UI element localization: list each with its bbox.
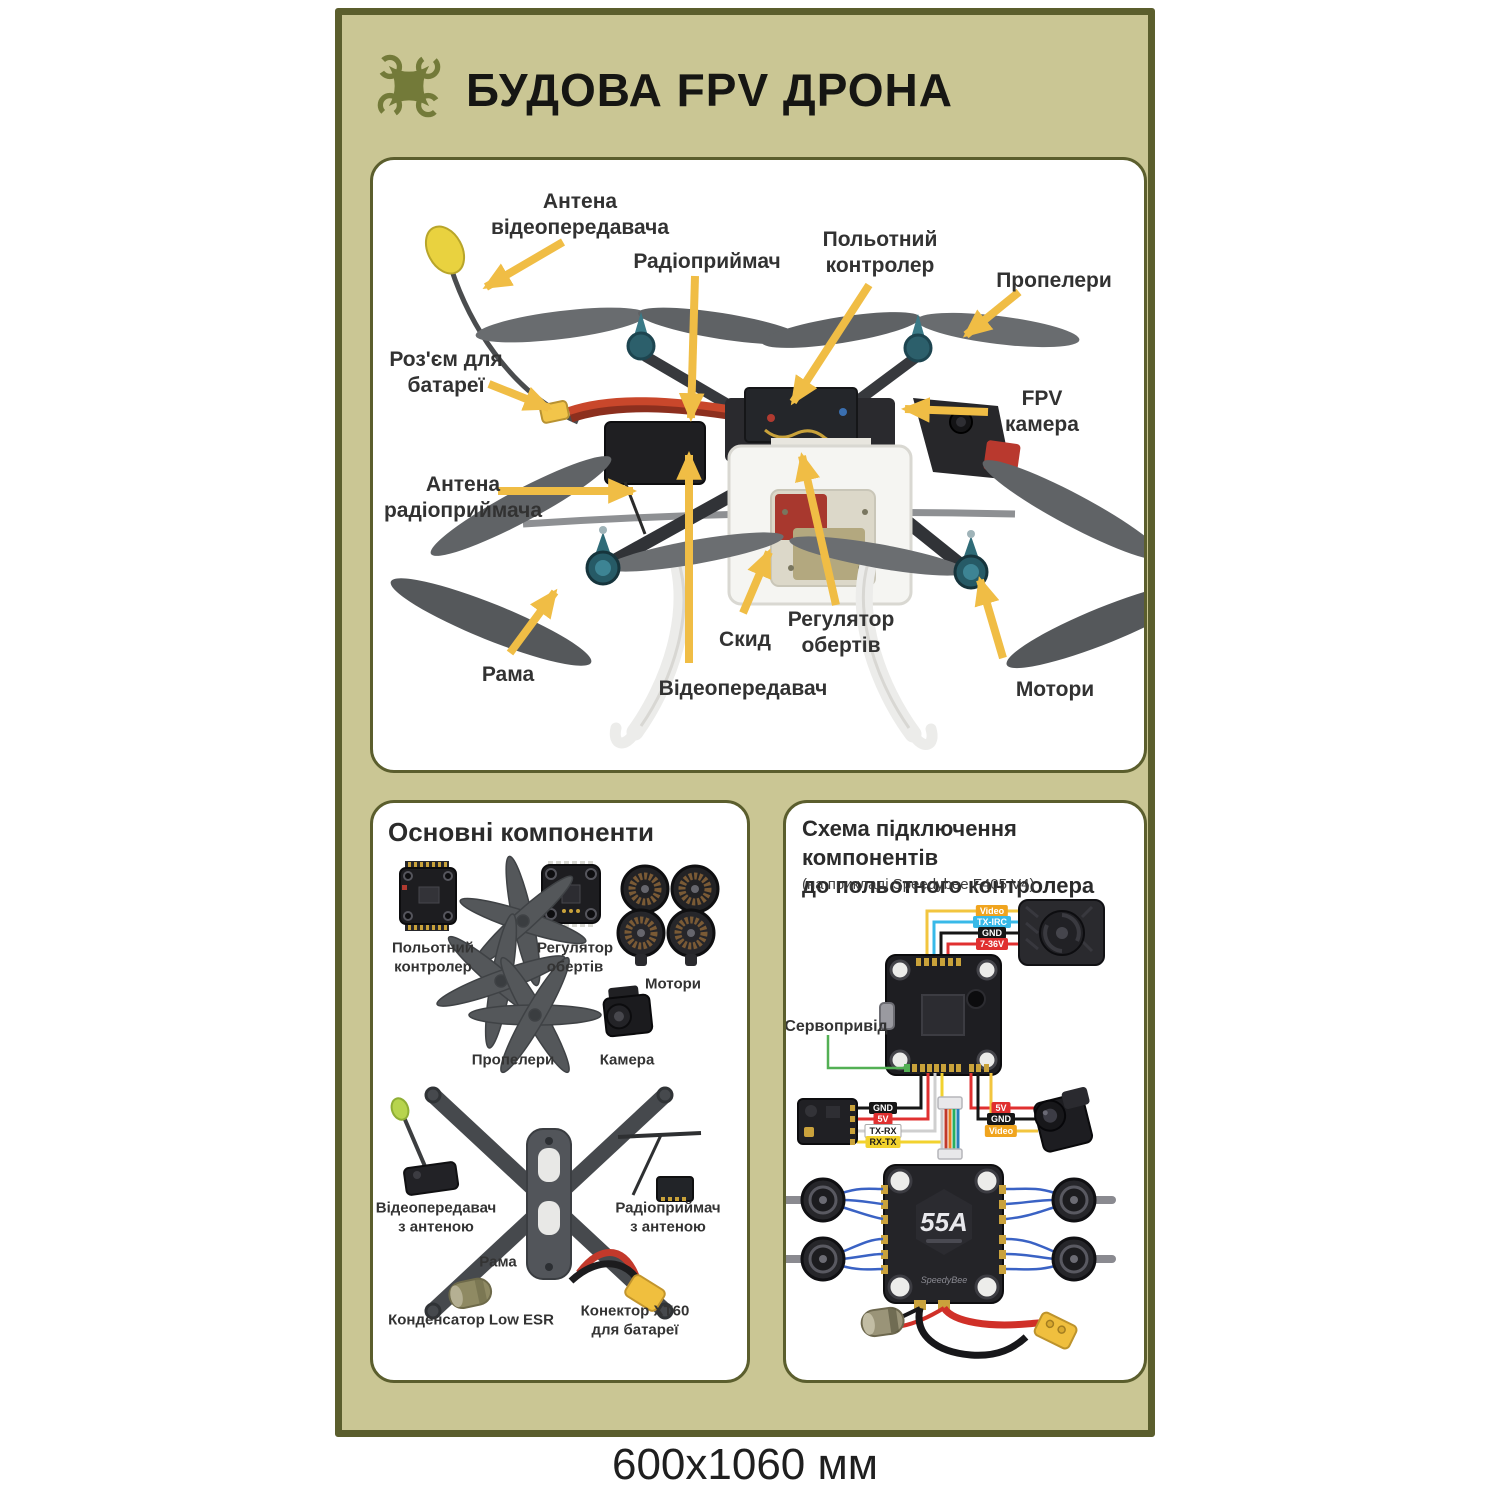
size-caption: 600x1060 мм (335, 1440, 1155, 1490)
wiring-fc-image (880, 955, 1001, 1075)
label-radiopryimach: Радіоприймач (633, 249, 780, 275)
label-videoperedavach: Відеопередавач (659, 676, 828, 702)
arrow-fpv-camera (905, 409, 988, 412)
label-rozyem: Роз'єм для батареї (389, 347, 502, 400)
rx-image (618, 1133, 701, 1201)
wiring-illustration: 55A SpeedyBee (786, 803, 1144, 1380)
top-propellers (474, 300, 1081, 355)
arrow-radiopryimach (691, 276, 695, 418)
label-comp-frame: Рама (479, 1254, 516, 1273)
label-polotnyi-kontroler: Польотний контролер (823, 227, 938, 280)
drone-logo-icon (374, 51, 444, 121)
label-motory: Мотори (1016, 677, 1094, 703)
components-panel: Основні компоненти (370, 800, 750, 1383)
label-comp-motors: Мотори (645, 976, 701, 995)
label-comp-camera: Камера (600, 1052, 655, 1071)
label-comp-rx: Радіоприймач з антеною (615, 1199, 720, 1237)
label-propelery: Пропелери (996, 268, 1112, 294)
esc-brand-text: SpeedyBee (921, 1275, 968, 1285)
wiring-vtx-image (1019, 900, 1104, 965)
vtx-antenna-pod (418, 220, 471, 280)
label-fpv-camera: FPV камера (991, 386, 1093, 439)
label-comp-xt60: Конектор XT60 для батареї (579, 1302, 691, 1340)
label-servo: Сервопривід (784, 1017, 887, 1037)
label-skyd: Скид (719, 627, 771, 653)
esc-amp-text: 55A (920, 1207, 968, 1237)
wiring-panel: Схема підключення компонентів до польотн… (783, 800, 1147, 1383)
badge-vtx-736v: 7-36V (976, 938, 1008, 950)
badge-cam-video: Video (985, 1125, 1017, 1137)
drone-diagram-panel: Антена відеопередавача Радіоприймач Поль… (370, 157, 1147, 773)
fc-image (400, 861, 456, 931)
wiring-esc-image: 55A SpeedyBee (842, 1165, 1055, 1303)
label-rama: Рама (482, 662, 534, 688)
label-comp-fc: Польотний контролер (392, 939, 474, 977)
label-comp-capacitor: Конденсатор Low ESR (388, 1312, 554, 1331)
poster: БУДОВА FPV ДРОНА (335, 8, 1155, 1437)
badge-cam-gnd: GND (987, 1113, 1015, 1125)
label-rehuliator: Регулятор обертів (788, 607, 895, 660)
components-illustrations (373, 803, 747, 1380)
ribbon-cable-image (938, 1097, 962, 1159)
poster-title: БУДОВА FPV ДРОНА (466, 59, 1026, 121)
arrow-antena-video (486, 242, 563, 287)
power-wiring (860, 1300, 1078, 1355)
label-antena-radio: Антена радіоприймача (384, 472, 542, 525)
arrow-motory (980, 580, 1003, 658)
label-comp-props: Пропелери (472, 1052, 555, 1071)
label-antena-video: Антена відеопередавача (491, 189, 669, 242)
label-comp-vtx: Відеопередавач з антеною (376, 1199, 497, 1237)
label-comp-esc: Регулятор обертів (537, 939, 613, 977)
badge-rx-rxtx: RX-TX (866, 1136, 901, 1148)
motors-image (618, 866, 718, 966)
